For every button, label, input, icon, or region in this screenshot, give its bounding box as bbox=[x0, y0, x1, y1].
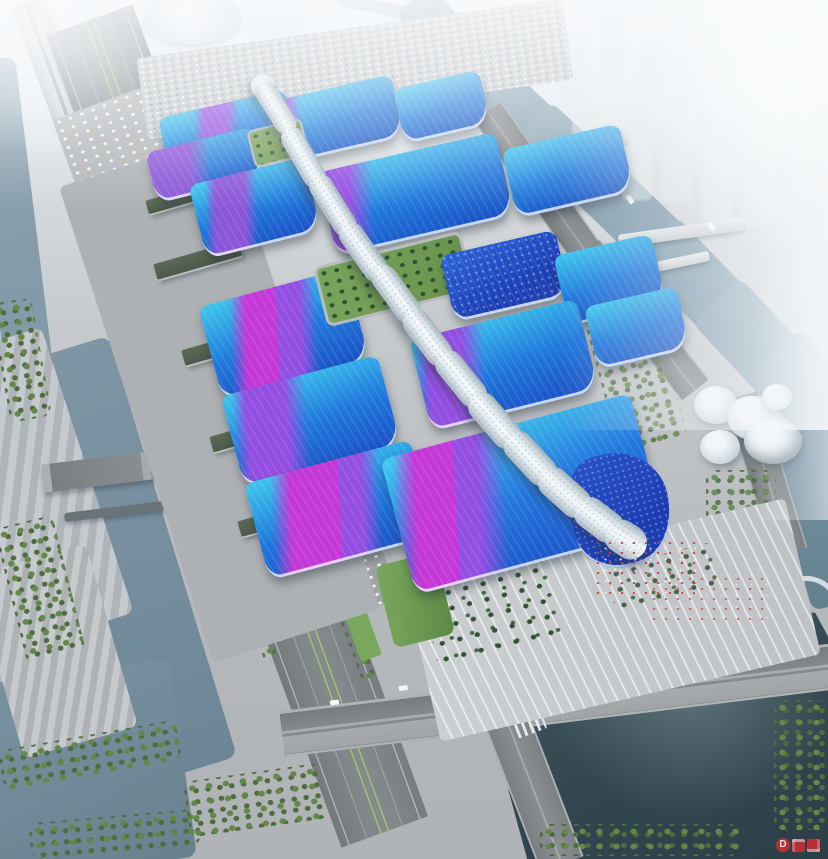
city-tower bbox=[742, 162, 774, 226]
watermark-d-badge: D bbox=[776, 838, 790, 852]
city-tower bbox=[784, 50, 816, 140]
pond-east-grove bbox=[774, 700, 828, 830]
organic-swirl-building bbox=[744, 418, 802, 464]
pond-south-grove bbox=[540, 824, 740, 856]
city-tower bbox=[640, 40, 670, 120]
city-tower bbox=[702, 152, 732, 222]
south-road-traffic-cars bbox=[330, 699, 340, 705]
watermark-glyph-icon bbox=[792, 839, 805, 852]
city-tower bbox=[600, 10, 626, 100]
city-tower bbox=[662, 142, 692, 202]
southwest-grove bbox=[183, 763, 329, 838]
aerial-rendering-scene: D bbox=[0, 0, 828, 859]
watermark-glyph-icon bbox=[807, 839, 820, 852]
organic-building bbox=[762, 384, 792, 410]
plaza-crowd bbox=[648, 574, 772, 626]
organic-building bbox=[700, 430, 740, 464]
city-tower bbox=[748, 14, 778, 124]
city-tower bbox=[712, 46, 742, 132]
city-tower bbox=[676, 8, 704, 112]
watermark-logo: D bbox=[776, 838, 820, 852]
